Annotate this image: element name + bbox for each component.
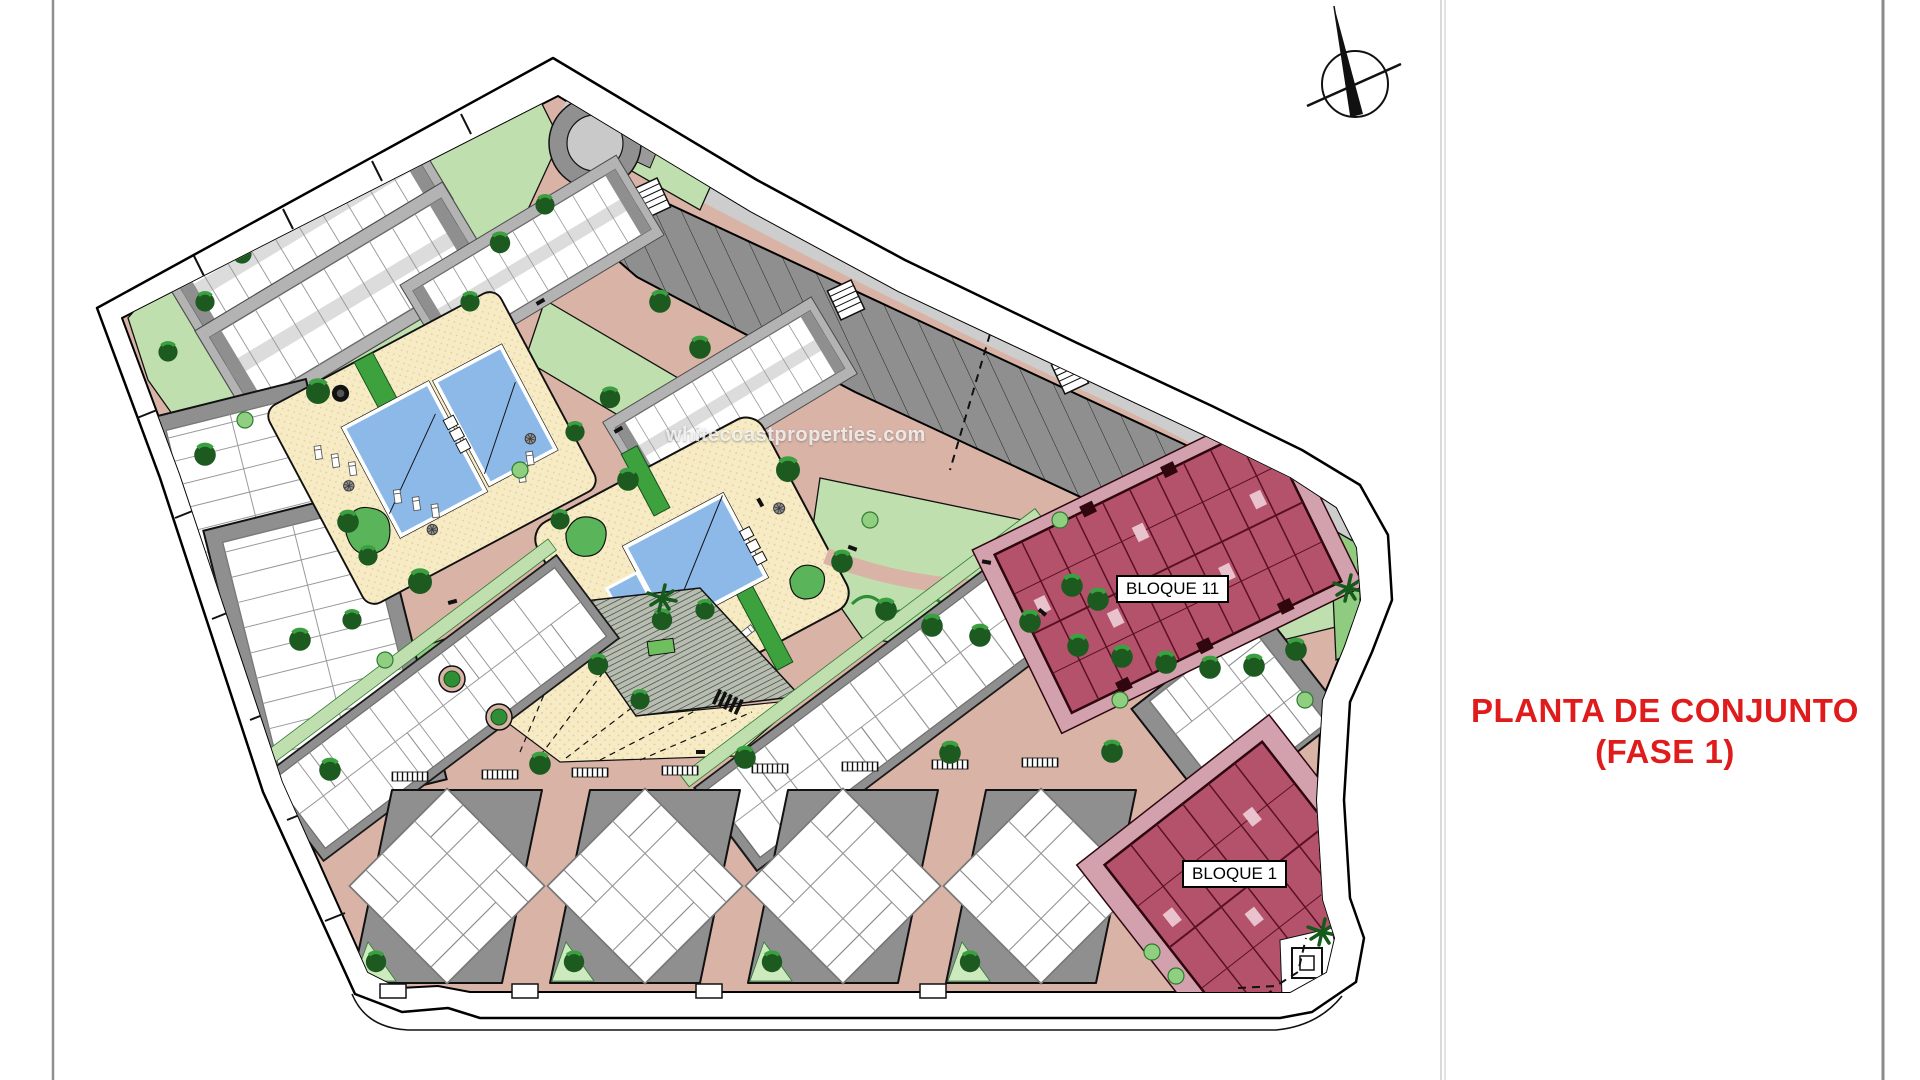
drawing-title-line1: PLANTA DE CONJUNTO <box>1447 690 1883 731</box>
north-arrow-icon <box>1307 6 1401 117</box>
planter-tree <box>439 666 465 692</box>
bloque-11-label: BLOQUE 11 <box>1116 575 1229 603</box>
site-plan-canvas <box>0 0 1920 1080</box>
watermark: whitecoastproperties.com <box>666 424 926 447</box>
planter-tree <box>486 704 512 730</box>
drawing-title: PLANTA DE CONJUNTO (FASE 1) <box>1447 690 1883 772</box>
drawing-title-line2: (FASE 1) <box>1447 731 1883 772</box>
drawing-sheet: whitecoastproperties.com BLOQUE 11 BLOQU… <box>0 0 1920 1080</box>
bloque-1-label: BLOQUE 1 <box>1182 860 1287 888</box>
